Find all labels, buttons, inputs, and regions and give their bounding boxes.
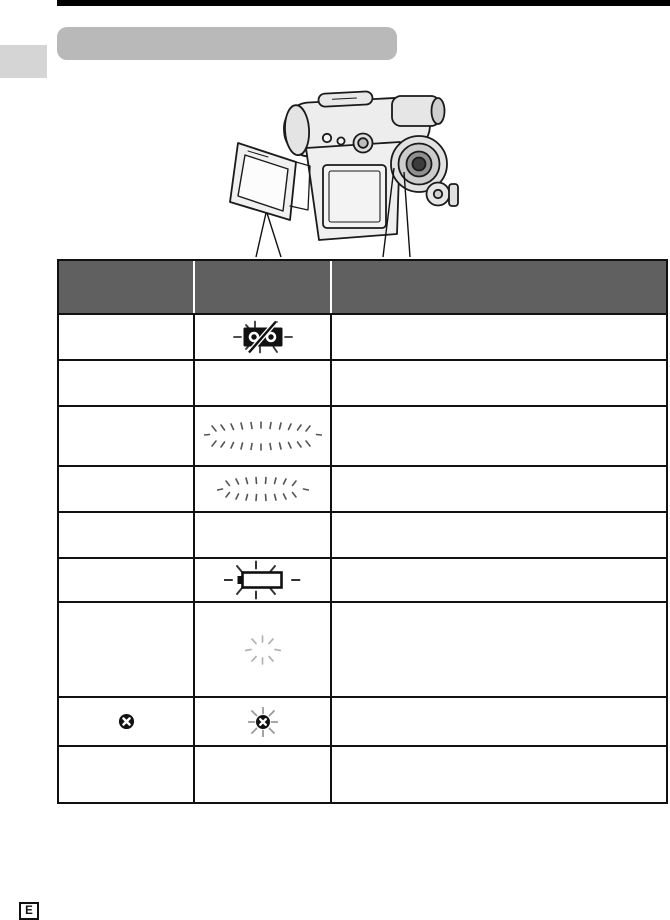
- camcorder-body: [306, 134, 400, 241]
- table-cell-r7-c2: [195, 603, 330, 696]
- table-cell-r9-c3: [332, 747, 666, 802]
- edition-marker-label: E: [25, 905, 33, 917]
- table-cell-r6-c1: [59, 559, 193, 601]
- table-cell-r8-c3: [332, 698, 666, 745]
- table-cell-r4-c2: [195, 467, 330, 511]
- chapter-side-tab: [0, 45, 47, 78]
- record-inhibit-flashing-icon: [248, 707, 278, 737]
- camcorder-illustration: [222, 88, 460, 258]
- record-inhibit-icon: [118, 713, 135, 730]
- table-cell-r1-c3: [332, 315, 666, 359]
- table-cell-r2-c2: [195, 361, 330, 405]
- table-cell-r1-c1: [59, 315, 193, 359]
- page-top-rule: [57, 0, 670, 6]
- table-cell-r2-c3: [332, 361, 666, 405]
- edition-marker: E: [19, 902, 39, 920]
- table-cell-r5-c2: [195, 513, 330, 557]
- mode-dial: [427, 183, 459, 207]
- table-cell-r2-c1: [59, 361, 193, 405]
- table-cell-r6-c3: [332, 559, 666, 601]
- table-cell-r9-c2: [195, 747, 330, 802]
- table-cell-r7-c3: [332, 603, 666, 696]
- table-cell-r6-c2: [195, 559, 330, 601]
- table-header-row: [59, 261, 666, 315]
- table-cell-r5-c1: [59, 513, 193, 557]
- manual-page: E: [0, 0, 670, 920]
- table-cell-r7-c1: [59, 603, 193, 696]
- table-header-col-1: [59, 261, 193, 313]
- flash-burst-wide-icon: [204, 421, 322, 451]
- battery-empty-flashing-icon: [224, 559, 302, 601]
- section-title-bar: [57, 27, 397, 60]
- viewfinder-eyecup: [392, 96, 445, 126]
- table-cell-r4-c1: [59, 467, 193, 511]
- table-cell-r5-c3: [332, 513, 666, 557]
- table-cell-r3-c2: [195, 407, 330, 465]
- table-header-col-3: [332, 261, 666, 313]
- table-cell-r8-c1: [59, 698, 193, 745]
- lcd-screen-pointer: [256, 213, 281, 257]
- table-cell-r3-c1: [59, 407, 193, 465]
- table-cell-r3-c3: [332, 407, 666, 465]
- table-cell-r9-c1: [59, 747, 193, 802]
- table-cell-r8-c2: [195, 698, 330, 745]
- table-header-col-2: [195, 261, 330, 313]
- table-cell-r1-c2: [195, 315, 330, 359]
- table-body: [59, 315, 666, 802]
- flash-burst-medium-icon: [217, 475, 309, 503]
- warning-indicator-table: [57, 259, 668, 804]
- table-cell-r4-c3: [332, 467, 666, 511]
- cassette-slash-flashing-icon: [233, 318, 293, 356]
- flash-burst-small-icon: [245, 634, 281, 666]
